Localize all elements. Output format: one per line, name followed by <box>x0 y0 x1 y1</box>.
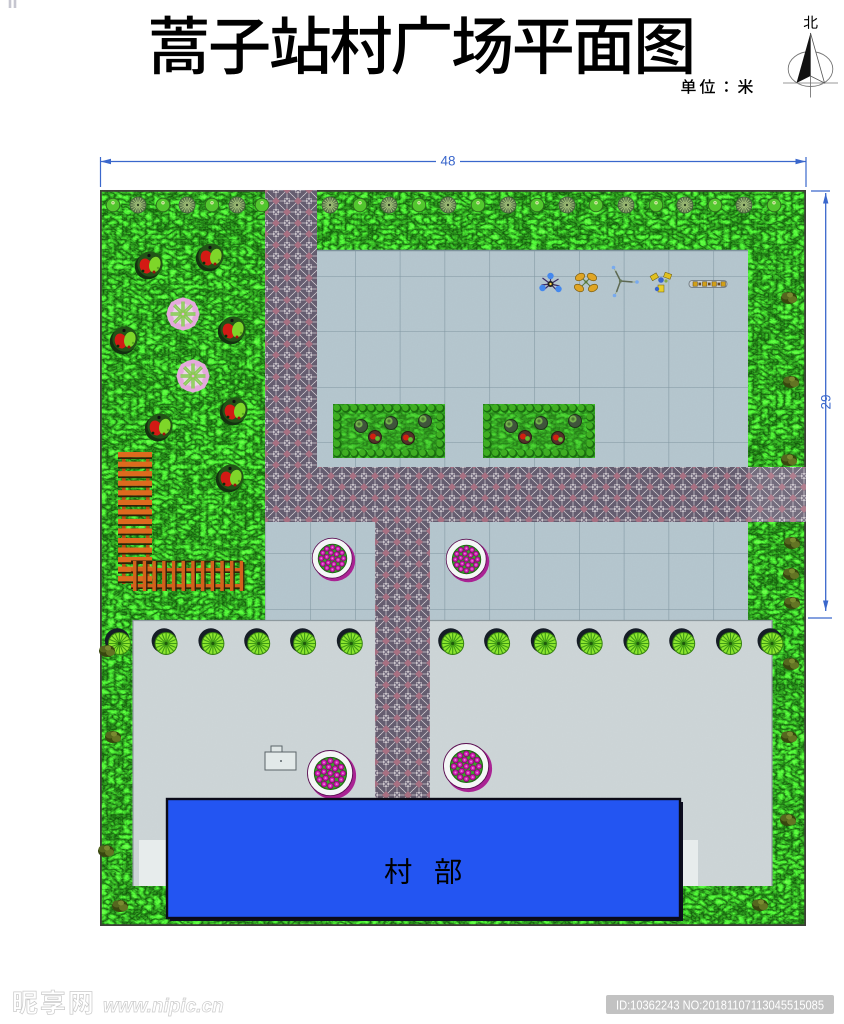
svg-text:48: 48 <box>440 154 455 169</box>
svg-text:29: 29 <box>819 394 834 409</box>
svg-text:ID:10362243 NO:201811071130455: ID:10362243 NO:20181107113045515085 <box>616 999 824 1013</box>
svg-text:www.nipic.cn: www.nipic.cn <box>103 996 224 1017</box>
